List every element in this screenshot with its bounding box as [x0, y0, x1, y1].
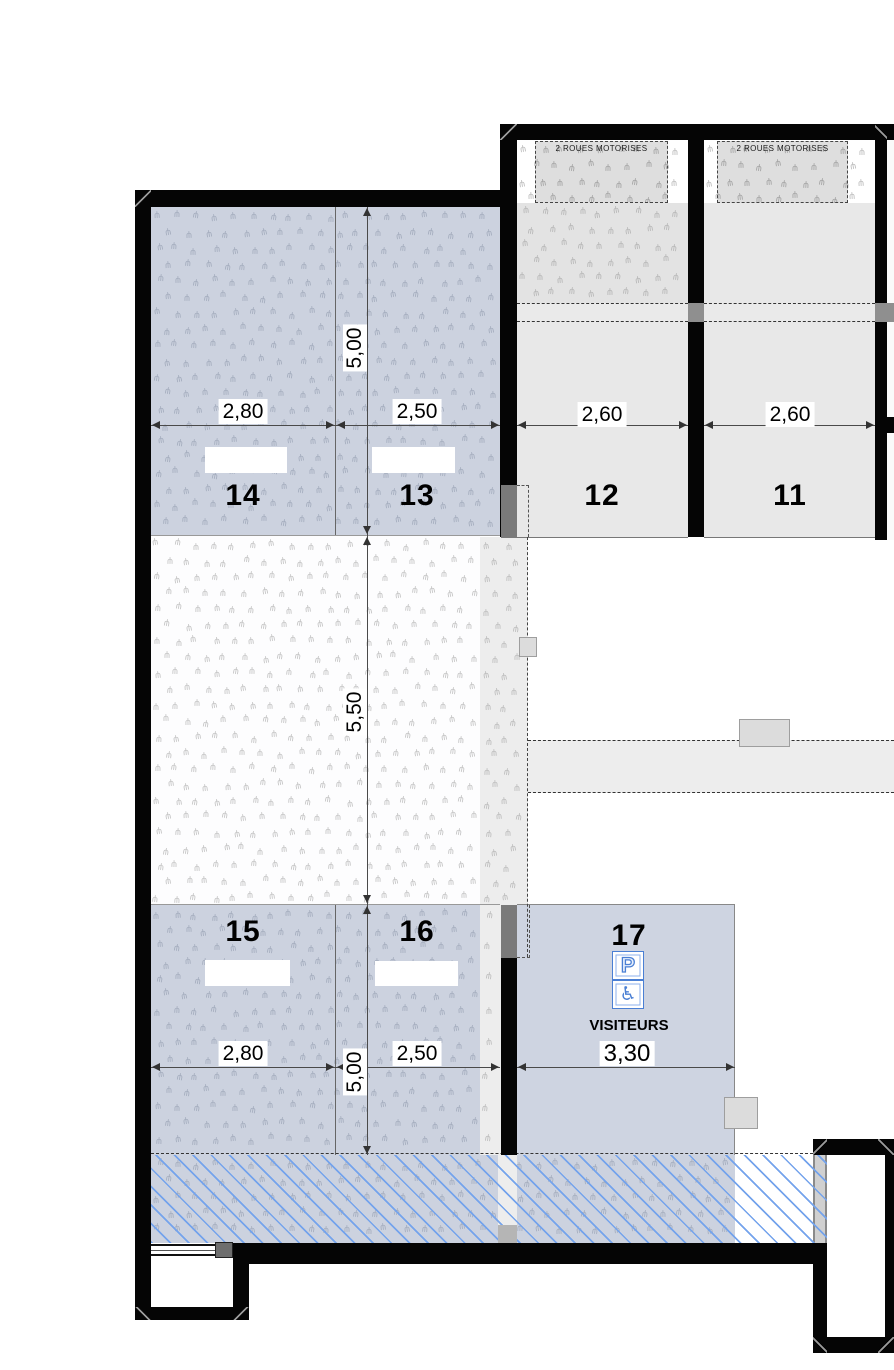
dim-arrow — [363, 526, 371, 534]
space-number-11: 11 — [773, 479, 807, 513]
bay11-dashed-band — [704, 303, 875, 322]
dim-depth-top: 5,00 — [343, 325, 367, 372]
window-symbol — [151, 1244, 215, 1256]
wall-bl-room-bottom — [135, 1307, 249, 1320]
dim-depth-bottom: 5,00 — [343, 1049, 367, 1096]
corner-mark — [500, 124, 517, 140]
dim-arrow — [518, 1063, 526, 1071]
corner-mark — [233, 1307, 249, 1320]
wall-top-upper-section — [500, 124, 894, 140]
corner-mark — [878, 1337, 894, 1353]
wheelchair-icon: ♿ — [619, 985, 636, 1004]
bay12-dashed-band — [517, 303, 688, 322]
dim-arrow — [363, 1146, 371, 1154]
stall-divider-13-14 — [335, 207, 336, 535]
floor-strip-upper: ψψψψψψψψψψψψψψψψψψψψψψψψψψψψψψψψψψψψψψψψ… — [480, 537, 528, 905]
wall-left — [135, 190, 151, 1320]
corridor-band — [528, 740, 894, 793]
edge-line-bottom-of-aisle — [151, 904, 500, 905]
space-number-13: 13 — [399, 479, 434, 513]
dim-width-14: 2,80 — [219, 399, 268, 424]
dim-width-12: 2,60 — [578, 402, 627, 427]
dim-arrow — [326, 1063, 334, 1071]
fixture-corridor — [739, 719, 790, 747]
fixture-small — [519, 637, 537, 657]
stall-divider-15-16 — [335, 905, 336, 1155]
dim-arrow — [363, 906, 371, 914]
dim-depth-aisle: 5,50 — [343, 689, 367, 736]
corner-mark — [878, 1139, 894, 1155]
corner-mark — [135, 1307, 151, 1320]
corner-mark — [135, 190, 151, 207]
parking-p-icon: P — [621, 955, 635, 976]
corner-mark — [875, 124, 887, 140]
dim-arrow — [363, 537, 371, 545]
no-parking-hatch — [151, 1155, 827, 1243]
right-edge-sliver — [887, 140, 894, 540]
dim-arrow — [152, 1063, 160, 1071]
dim-arrow — [726, 1063, 734, 1071]
visitors-label: VISITEURS — [589, 1017, 668, 1034]
space-number-15: 15 — [225, 915, 260, 949]
dim-width-17: 3,30 — [600, 1041, 655, 1066]
corner-mark — [813, 1139, 827, 1155]
wall-bay-divider — [688, 140, 704, 537]
dim-arrow — [363, 895, 371, 903]
floor-strip-lower: ψψψψψψψψ — [480, 905, 501, 1155]
door-dashed-box-12 — [517, 485, 529, 537]
space-number-17: 17 — [611, 919, 646, 953]
dim-width-11: 2,60 — [766, 402, 815, 427]
dim-line-bottom-right — [517, 1067, 735, 1068]
dim-arrow — [518, 421, 526, 429]
wall-stub-right-edge — [887, 417, 894, 433]
dim-width-13: 2,50 — [393, 399, 442, 424]
wall-space17-left — [501, 958, 517, 1155]
parking-sign-icon: P — [612, 951, 644, 980]
dim-arrow — [363, 208, 371, 216]
dim-arrow — [679, 421, 687, 429]
wheelchair-sign-icon: ♿ — [612, 980, 644, 1009]
bay11-bottom-line — [704, 537, 875, 538]
wall-bay12-left — [500, 140, 517, 537]
band-wall-crossing-2 — [875, 303, 894, 322]
dim-arrow — [491, 1063, 499, 1071]
door-dashed-box-17 — [517, 905, 530, 958]
dim-arrow — [491, 421, 499, 429]
wall-top-left-block — [135, 190, 500, 207]
dashed-guide-vertical — [527, 537, 528, 957]
fixture-space17 — [724, 1097, 758, 1129]
moto-zone-12-label: 2 ROUES MOTORISES — [535, 144, 668, 153]
door-block-bay12 — [501, 485, 517, 538]
wall-br-room-right — [885, 1139, 894, 1353]
parking-block-14-13: ψψψψψψψψψψψψψψψψψψψψψψψψψψψψψψψψψψψψψψψψ… — [151, 207, 500, 535]
dim-width-16: 2,50 — [393, 1041, 442, 1066]
hatch-strip-dashed-edge — [151, 1153, 813, 1155]
band-wall-crossing-1 — [688, 303, 704, 322]
dim-width-15: 2,80 — [219, 1041, 268, 1066]
space-number-12: 12 — [584, 479, 619, 513]
dim-arrow — [326, 421, 334, 429]
marking-box-13 — [372, 447, 455, 473]
moto-zone-11-label: 2 ROUES MOTORISES — [717, 144, 848, 153]
parking-floor-plan: ψψψψψψψψψψψψψψψψψψψψψψψψψψψψψψψψψψψψψψψψ… — [0, 0, 894, 1370]
bay12-bottom-line — [517, 537, 688, 538]
door-leaf-dark — [215, 1242, 233, 1258]
dim-arrow — [866, 421, 874, 429]
bay12-upper-area: ψψψψψψψψψψψψψψψψψψψψψψψψψψψψψψψψψψψψψψψψ… — [517, 203, 688, 303]
marking-box-15 — [205, 960, 290, 986]
dim-arrow — [705, 421, 713, 429]
space-number-14: 14 — [225, 479, 260, 513]
marking-box-16 — [375, 961, 458, 986]
wall-bottom-main — [233, 1243, 813, 1264]
dim-arrow — [337, 421, 345, 429]
dim-arrow — [152, 421, 160, 429]
corner-mark — [813, 1337, 827, 1353]
edge-line-top-of-aisle — [151, 535, 500, 536]
marking-box-14 — [205, 447, 287, 473]
door-block-space17 — [501, 905, 517, 958]
maneuvering-area: ψψψψψψψψψψψψψψψψψψψψψψψψψψψψψψψψψψψψψψψψ… — [151, 535, 480, 905]
hatch-door-leaf — [498, 1225, 517, 1243]
dim-line-vertical — [367, 207, 368, 1155]
window-mullion — [151, 1250, 215, 1251]
wall-bay11-right — [875, 140, 887, 540]
space-number-16: 16 — [399, 915, 434, 949]
